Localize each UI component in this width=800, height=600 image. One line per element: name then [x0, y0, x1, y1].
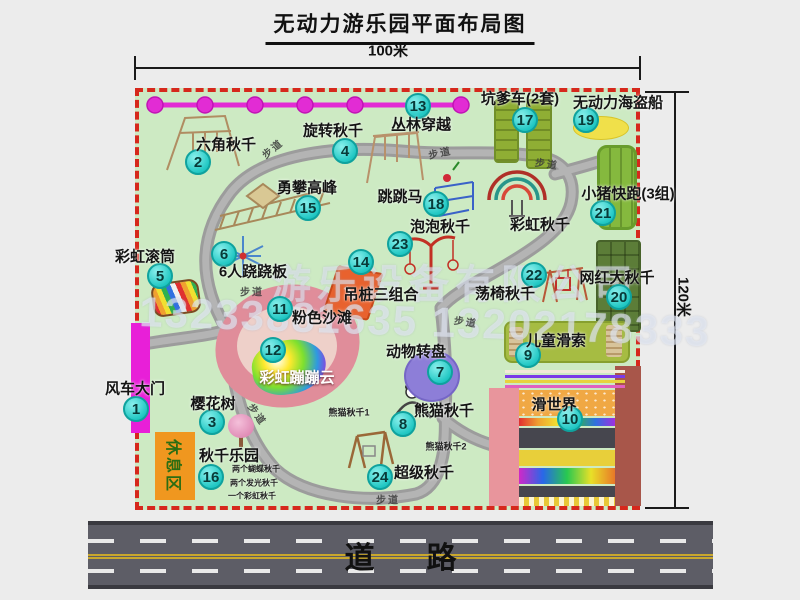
hexagon-swing-icon — [167, 116, 239, 170]
cherry-tree-trunk — [239, 437, 243, 447]
big-swing-frame — [596, 240, 641, 332]
slide-world-pink-column — [489, 388, 519, 506]
jumping-horse-icon — [435, 162, 473, 216]
road: 道路 — [88, 521, 713, 589]
pig-run-track — [597, 145, 637, 230]
width-dimension-line — [135, 67, 640, 69]
seesaw-icon — [223, 236, 263, 276]
rainbow-roller-barrel — [150, 278, 202, 318]
rainbow-swing-icon — [489, 172, 545, 216]
slide-lane-rainbow-thin — [519, 418, 615, 426]
slide-lane-dark-2 — [519, 486, 615, 497]
windmill-gate — [131, 323, 150, 433]
zipline-ladder-right — [606, 325, 622, 357]
rest-area-label: 休息区 — [163, 439, 187, 493]
road-label: 道路 — [293, 533, 509, 577]
super-swing-icon — [349, 432, 393, 468]
jungle-crossing-line — [147, 97, 469, 113]
cherry-tree-icon — [228, 414, 254, 438]
zipline-cables — [505, 370, 625, 390]
playground-layout-map: 无动力游乐园平面布局图 100米 120米 — [0, 0, 800, 600]
slide-lane-rainbow-wide — [519, 468, 615, 484]
slide-lane-orange — [519, 390, 615, 416]
kart-track-2 — [526, 99, 552, 169]
height-dimension-tick-top — [645, 91, 689, 93]
pirate-ship-pool — [573, 116, 629, 140]
width-dimension-label: 100米 — [368, 40, 408, 61]
width-dimension-tick-left — [134, 56, 136, 80]
height-dimension-label: 120米 — [674, 277, 695, 317]
animal-carousel-disc — [404, 350, 460, 402]
height-dimension-tick-bottom — [645, 507, 689, 509]
kart-track-1 — [494, 99, 519, 163]
slide-lane-dark-1 — [519, 428, 615, 448]
width-dimension-tick-right — [639, 56, 641, 80]
slide-lane-yellow — [519, 450, 615, 466]
zipline-ladder-left — [509, 327, 523, 357]
height-dimension-line — [674, 91, 676, 509]
bubble-swing-icon — [405, 237, 458, 288]
chair-swing-icon — [543, 268, 587, 302]
slide-lane-wave — [519, 497, 615, 506]
